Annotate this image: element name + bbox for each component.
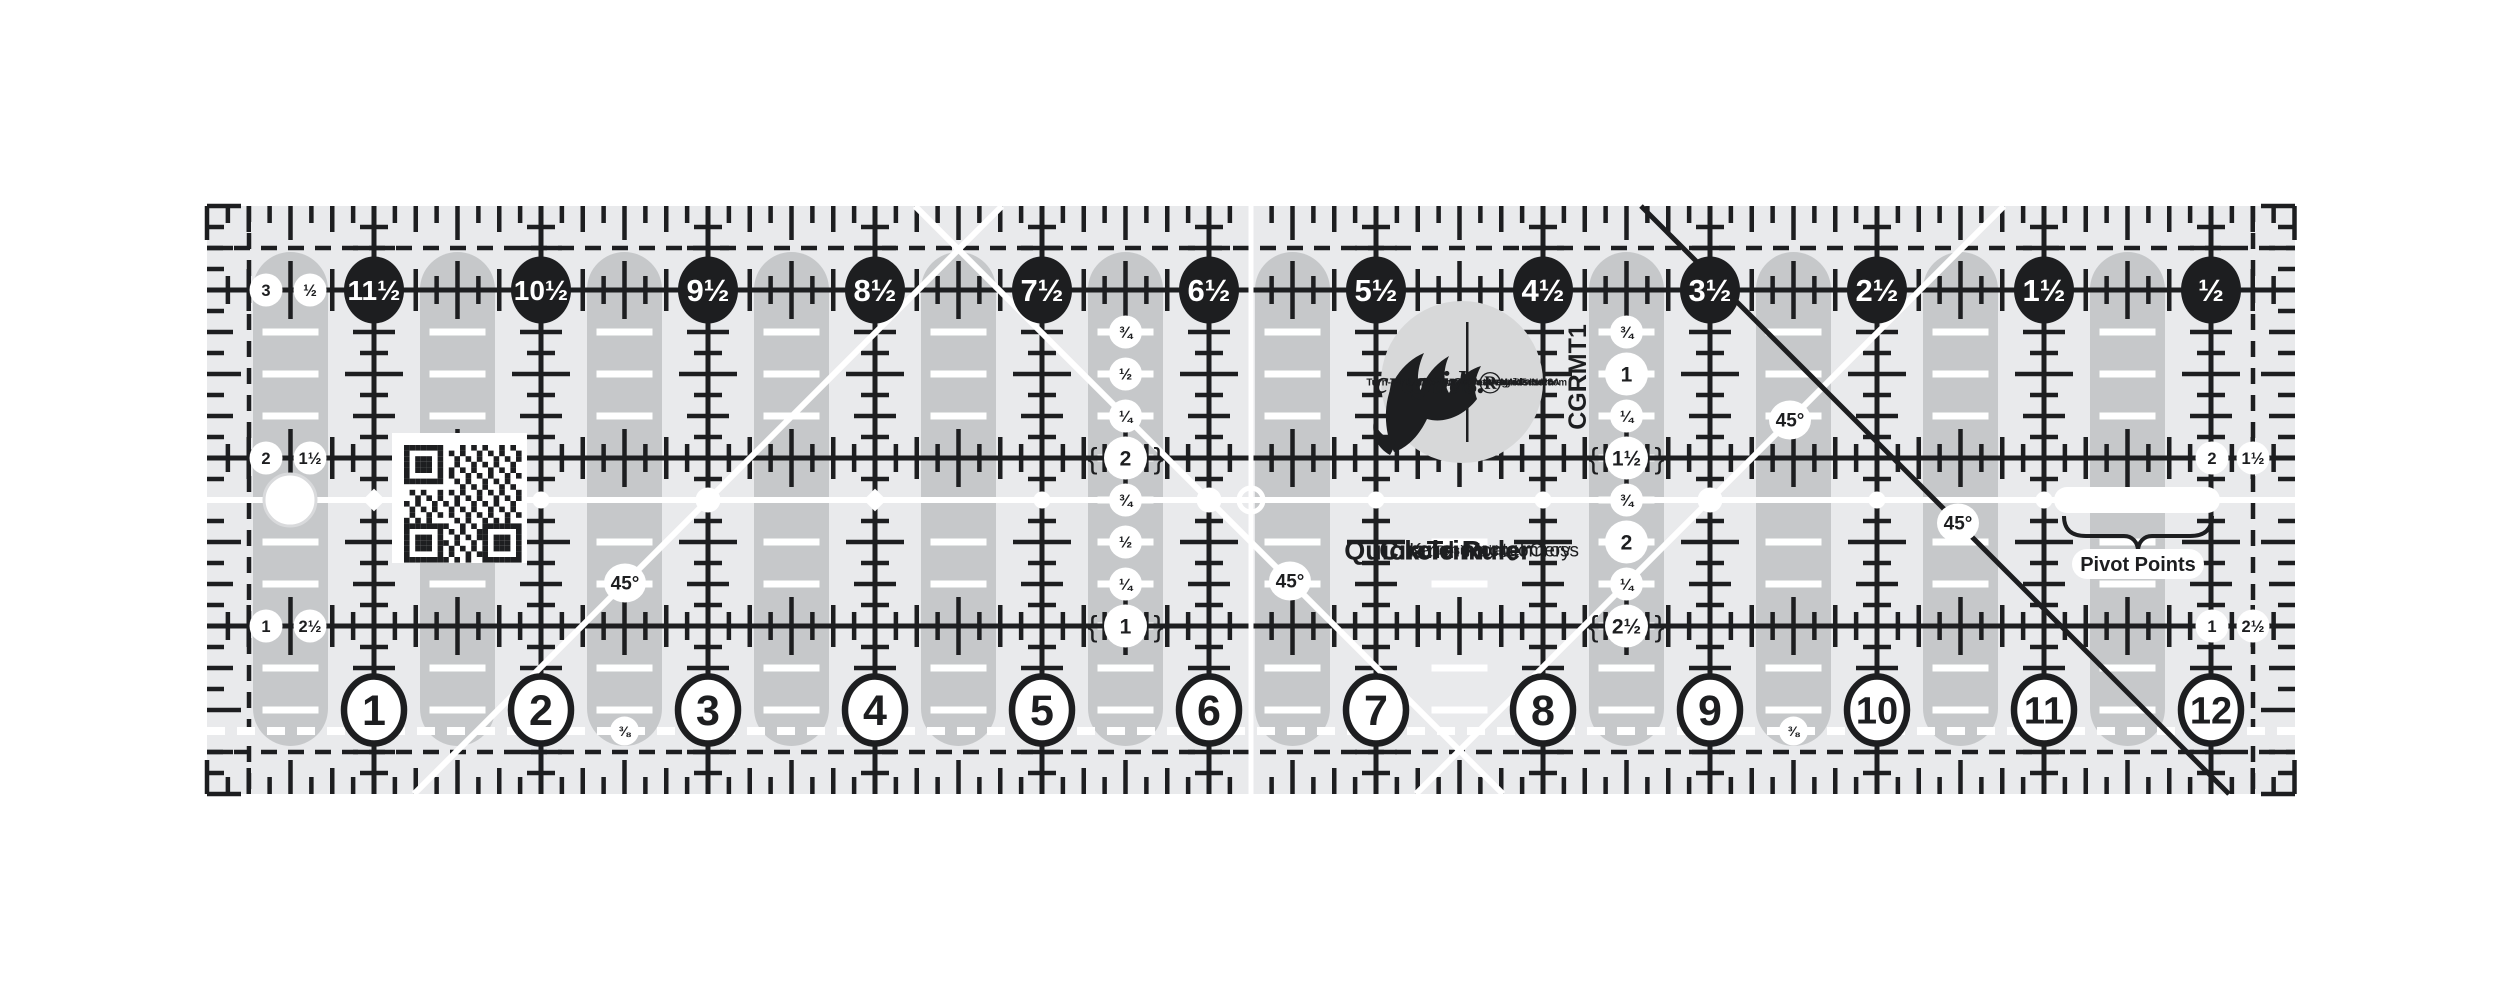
tick [854, 666, 896, 671]
tick [1856, 582, 1898, 587]
edge-tick [894, 777, 899, 794]
qr-module [415, 518, 421, 524]
tick [1848, 540, 1906, 545]
edge-tick [207, 351, 224, 356]
slot-dash [263, 371, 319, 378]
slot-dash [931, 581, 987, 588]
tick [1696, 645, 1724, 650]
qr-module [494, 540, 500, 546]
qr-module [471, 540, 477, 546]
edge-tick [1896, 777, 1901, 794]
edge-tick [518, 206, 523, 223]
tick [2125, 597, 2130, 655]
tick [1750, 605, 1755, 647]
tick [2084, 269, 2089, 311]
tick [1195, 477, 1223, 482]
edge-tick [267, 206, 272, 223]
tick [1416, 269, 1421, 311]
tick [1013, 540, 1071, 545]
qr-module [505, 535, 511, 541]
tick [854, 582, 896, 587]
edge-tick [852, 777, 857, 794]
tick [1514, 456, 1572, 461]
tick [1529, 477, 1557, 482]
qr-module [477, 456, 483, 462]
edge-tick [476, 206, 481, 223]
edge-tick [2167, 768, 2172, 794]
qr-module [488, 523, 494, 529]
edge-tick [207, 288, 241, 293]
edge-tick [1750, 206, 1755, 232]
qr-module [466, 535, 472, 541]
edge-tick [414, 206, 419, 232]
tick [1165, 269, 1170, 311]
edge-tick [2292, 760, 2297, 794]
tick [748, 269, 753, 311]
tick [1750, 269, 1755, 311]
edge-tick [1374, 206, 1379, 240]
slot-dash [931, 707, 987, 714]
edge-tick [207, 477, 224, 482]
tick [1180, 372, 1238, 377]
tick [810, 444, 815, 472]
tick [1696, 351, 1724, 356]
edge-tick [1875, 206, 1880, 240]
tick [861, 477, 889, 482]
edge-tick [1541, 760, 1546, 794]
qr-module [505, 546, 511, 552]
qr-module [404, 467, 410, 473]
qr-module [443, 540, 449, 546]
tick [527, 393, 555, 398]
edge-tick [1520, 777, 1525, 794]
tick [1863, 393, 1891, 398]
tick [679, 372, 737, 377]
edge-tick [1708, 206, 1713, 240]
tick [679, 456, 737, 461]
tick [664, 605, 669, 647]
tick [455, 261, 460, 319]
edge-tick [1102, 777, 1107, 794]
top-scale-number: 3½ [1688, 273, 1731, 308]
tick [527, 351, 555, 356]
tick [2030, 393, 2058, 398]
tick [1689, 666, 1731, 671]
qr-module [516, 473, 522, 479]
tick [1195, 393, 1223, 398]
tick [810, 612, 815, 640]
tick [2104, 276, 2109, 304]
tick [622, 597, 627, 655]
tick [1791, 597, 1796, 655]
slot-dash [1933, 707, 1989, 714]
edge-tick [288, 760, 293, 794]
quilting-ruler-photo: 11½10½9½8½7½6½5½4½3½2½1½½123456789101112… [0, 0, 2503, 1000]
tick [1856, 666, 1898, 671]
qr-module [471, 445, 477, 451]
edge-tick [935, 206, 940, 223]
tick [2023, 582, 2065, 587]
eighth-label: ⅜ [619, 723, 632, 739]
tick [527, 519, 555, 524]
edge-tick [2261, 792, 2295, 797]
tick [1681, 540, 1739, 545]
qr-module [404, 551, 410, 557]
tick [2146, 444, 2151, 472]
fraction-label: ¾ [1620, 493, 1635, 510]
tick [1180, 624, 1238, 629]
qr-module [426, 462, 432, 468]
qr-module [516, 557, 522, 563]
tick [345, 372, 403, 377]
edge-tick [1708, 760, 1713, 794]
angle-label: 45° [1776, 411, 1805, 432]
qr-module [505, 557, 511, 563]
edge-tick [1311, 206, 1316, 223]
page: { "page": { "background": "#ffffff" }, "… [0, 0, 2503, 1000]
tick [664, 437, 669, 479]
qr-module [438, 445, 444, 451]
tick [1681, 624, 1739, 629]
qr-module [460, 546, 466, 552]
edge-tick [205, 760, 210, 794]
qr-module [499, 467, 505, 473]
tick [1833, 605, 1838, 647]
edge-tick [2278, 225, 2295, 230]
qr-module [499, 451, 505, 457]
tick [1666, 605, 1671, 647]
edge-tick [330, 768, 335, 794]
qr-module [426, 540, 432, 546]
slot-dash [597, 707, 653, 714]
tick [2015, 456, 2073, 461]
tick [434, 276, 439, 304]
qr-module [421, 445, 427, 451]
edge-tick [207, 561, 224, 566]
qr-module [499, 484, 505, 490]
edge-tick [2269, 582, 2295, 587]
tick [1021, 414, 1063, 419]
edge-tick [207, 519, 224, 524]
edge-tick [207, 603, 224, 608]
edge-tick [351, 206, 356, 223]
qr-module [454, 479, 460, 485]
qr-module [516, 512, 522, 518]
qr-module [471, 546, 477, 552]
edge-tick [2278, 603, 2295, 608]
qr-module [415, 523, 421, 529]
tick [846, 372, 904, 377]
edge-tick [727, 777, 732, 794]
qr-module [482, 523, 488, 529]
edge-tick [1541, 206, 1546, 240]
tick [1666, 437, 1671, 479]
edge-tick [1228, 206, 1233, 223]
edge-tick [1353, 206, 1358, 223]
edge-tick [1478, 777, 1483, 794]
qr-module [421, 507, 427, 513]
tick [2030, 519, 2058, 524]
fraction-label: 2½ [1612, 615, 1641, 638]
tick [1514, 624, 1572, 629]
edge-tick [2278, 393, 2295, 398]
edge-tick [1812, 206, 1817, 223]
tick [768, 612, 773, 640]
tick [789, 429, 794, 487]
edge-tick [1436, 777, 1441, 794]
edge-tick [1019, 206, 1024, 223]
tick [687, 414, 729, 419]
qr-module [482, 546, 488, 552]
edge-tick [1061, 206, 1066, 223]
edge-label: 1 [2207, 618, 2216, 636]
pivot-pill [2054, 487, 2220, 513]
tick [1013, 372, 1071, 377]
tick [2023, 330, 2065, 335]
tick [694, 393, 722, 398]
tick [694, 351, 722, 356]
slot-dash [430, 329, 486, 336]
tick [1833, 437, 1838, 479]
qr-module [494, 462, 500, 468]
edge-tick [2063, 777, 2068, 794]
top-scale-number: 5½ [1354, 273, 1397, 308]
edge-tick [2278, 267, 2295, 272]
edge-tick [207, 456, 241, 461]
tick [1696, 435, 1724, 440]
tick [1958, 429, 1963, 487]
qr-module [460, 467, 466, 473]
qr-module [510, 467, 516, 473]
pivot-dot [533, 492, 550, 509]
edge-tick [1729, 777, 1734, 794]
tick [414, 269, 419, 311]
qr-module [477, 535, 483, 541]
tick [520, 582, 562, 587]
tick [2167, 605, 2172, 647]
qr-module [426, 445, 432, 451]
edge-tick [207, 414, 233, 419]
tick [1188, 414, 1230, 419]
edge-tick [1687, 206, 1692, 223]
tick [694, 645, 722, 650]
edge-tick [1937, 206, 1942, 223]
qr-module [404, 479, 410, 485]
qr-module [415, 546, 421, 552]
tick [2015, 540, 2073, 545]
edge-tick [1520, 206, 1525, 223]
edge-tick [1833, 768, 1838, 794]
qr-module [438, 546, 444, 552]
edge-tick [1687, 777, 1692, 794]
edge-tick [1562, 206, 1567, 223]
qr-module [505, 456, 511, 462]
edge-tick [1917, 206, 1922, 232]
qr-module [482, 557, 488, 563]
qr-module [516, 551, 522, 557]
tick [1812, 612, 1817, 640]
slot-dash [1599, 707, 1655, 714]
edge-tick [706, 760, 711, 794]
qr-module [454, 518, 460, 524]
tick [1082, 269, 1087, 311]
edge-tick [2278, 645, 2295, 650]
qr-module [505, 479, 511, 485]
edge-tick [1666, 206, 1671, 232]
tick [861, 351, 889, 356]
qr-module [494, 495, 500, 501]
edge-tick [1979, 206, 1984, 223]
tick [956, 261, 961, 319]
slot-dash [263, 329, 319, 336]
brace-mark: } [1654, 611, 1664, 644]
tick [956, 429, 961, 487]
edge-tick [915, 768, 920, 794]
edge-label: 1½ [2242, 450, 2265, 468]
title-text: Rachel Cross [1465, 541, 1579, 562]
tick [2015, 372, 2073, 377]
tick [1603, 276, 1608, 304]
edge-tick [2261, 372, 2295, 377]
edge-tick [372, 206, 377, 240]
edge-tick [2084, 768, 2089, 794]
edge-label: 2½ [299, 618, 322, 636]
edge-tick [2042, 206, 2047, 240]
edge-tick [1603, 206, 1608, 223]
qr-module [404, 546, 410, 552]
tick [1311, 612, 1316, 640]
tick [1347, 456, 1405, 461]
slot-dash [1265, 413, 1321, 420]
slot-dash [1933, 413, 1989, 420]
tick [2030, 561, 2058, 566]
edge-tick [643, 206, 648, 223]
crosshair-stub [1249, 507, 1254, 516]
qr-module [426, 557, 432, 563]
fraction-label: ½ [1119, 367, 1132, 384]
crosshair-stub [1249, 476, 1254, 485]
edge-label: 1 [261, 618, 270, 636]
tick [1696, 477, 1724, 482]
tick [2125, 261, 2130, 319]
qr-module [499, 535, 505, 541]
pivot-dot [1197, 488, 1222, 513]
qr-module [415, 479, 421, 485]
qr-module [505, 518, 511, 524]
edge-tick [852, 206, 857, 223]
edge-tick [685, 777, 690, 794]
tick [1082, 437, 1087, 479]
tick [581, 437, 586, 479]
edge-tick [1624, 206, 1629, 240]
tick [2000, 605, 2005, 647]
tick [846, 540, 904, 545]
slot-dash [263, 539, 319, 546]
tick [512, 624, 570, 629]
tick [1812, 276, 1817, 304]
edge-tick [1269, 206, 1274, 223]
edge-tick [768, 777, 773, 794]
slot-dash [1432, 707, 1488, 714]
edge-tick [1374, 760, 1379, 794]
tick [1583, 437, 1588, 479]
brace-mark: } [1153, 611, 1163, 644]
edge-tick [581, 768, 586, 794]
qr-module [421, 535, 427, 541]
tick [2023, 414, 2065, 419]
qr-module [438, 490, 444, 496]
slot-dash [597, 665, 653, 672]
edge-label: 3 [261, 282, 270, 300]
edge-tick [1583, 206, 1588, 232]
qr-module [443, 557, 449, 563]
edge-tick [956, 206, 961, 240]
edge-tick [1958, 760, 1963, 794]
qr-module [415, 495, 421, 501]
edge-tick [1207, 760, 1212, 794]
tick [935, 612, 940, 640]
edge-tick [2104, 777, 2109, 794]
slot-dash [263, 707, 319, 714]
tick [1332, 269, 1337, 311]
edge-tick [1165, 768, 1170, 794]
bottom-scale-number: 9 [1698, 687, 1722, 735]
edge-tick [226, 777, 231, 794]
tick [2167, 437, 2172, 479]
edge-tick [1854, 777, 1859, 794]
qr-module [454, 495, 460, 501]
qr-module [438, 456, 444, 462]
edge-tick [207, 645, 224, 650]
qr-module [466, 512, 472, 518]
tick [1522, 330, 1564, 335]
edge-tick [2042, 760, 2047, 794]
fraction-label: ¾ [1119, 325, 1134, 342]
tick [2167, 269, 2172, 311]
tick [1195, 519, 1223, 524]
slot-dash [2100, 539, 2156, 546]
edge-tick [2271, 206, 2276, 223]
tick [1332, 437, 1337, 479]
slot-dash [1098, 707, 1154, 714]
tick [1863, 561, 1891, 566]
top-scale-number: 4½ [1521, 273, 1564, 308]
tick [1028, 561, 1056, 566]
tick [2197, 393, 2225, 398]
edge-label: 2 [261, 450, 270, 468]
tick [360, 477, 388, 482]
tick [643, 612, 648, 640]
tick [1937, 444, 1942, 472]
qr-module [454, 540, 460, 546]
edge-label: 2 [2207, 450, 2216, 468]
pivot-dot [1869, 492, 1886, 509]
slot-dash [430, 371, 486, 378]
qr-module [488, 473, 494, 479]
tick [1645, 276, 1650, 304]
edge-tick [622, 206, 627, 240]
edge-tick [1311, 777, 1316, 794]
tick [789, 261, 794, 319]
edge-tick [789, 206, 794, 240]
qr-module [516, 495, 522, 501]
logo-text: MADE IN USA [1500, 377, 1560, 387]
qr-module [438, 451, 444, 457]
edge-tick [727, 206, 732, 223]
qr-module [415, 462, 421, 468]
fraction-label: ½ [1119, 535, 1132, 552]
tick [768, 444, 773, 472]
